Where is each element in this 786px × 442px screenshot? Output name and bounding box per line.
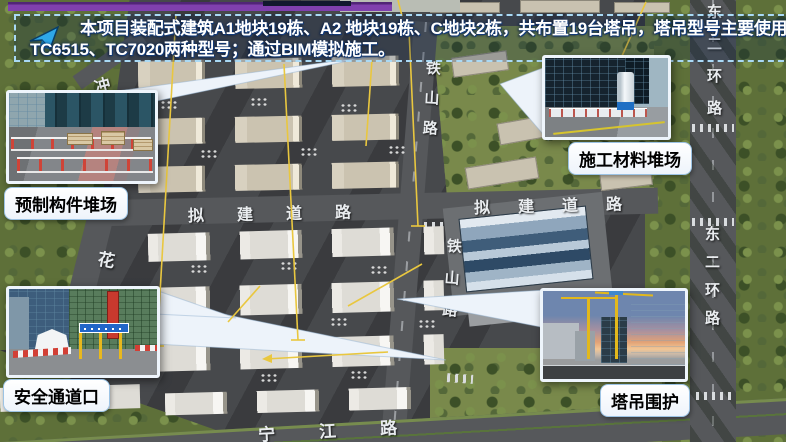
callout-image-material-yard — [542, 55, 671, 140]
callout-image-safety-passage — [6, 286, 160, 378]
banner-line-2: TC6515、TC7020两种型号；通过BIM模拟施工。 — [30, 39, 395, 61]
component-stack — [133, 139, 153, 151]
component-stack — [101, 131, 125, 145]
tower-crane-mast — [615, 293, 618, 359]
crosswalk — [696, 392, 736, 400]
fence — [17, 157, 153, 173]
callout-label-material-yard: 施工材料堆场 — [568, 142, 692, 175]
barrier — [135, 345, 160, 351]
safety-canopy — [75, 323, 133, 359]
tower-crane-mast — [587, 297, 590, 359]
tower-crane-jib — [561, 297, 617, 299]
top-accent-bar — [8, 2, 392, 11]
callout-image-precast-yard — [6, 90, 158, 184]
building — [614, 2, 670, 13]
callout-label-precast-yard: 预制构件堆场 — [4, 187, 128, 220]
road-label-east-ring-lower: 东二环路 — [701, 226, 722, 338]
accent-bar-detail — [263, 1, 351, 6]
crosswalk — [447, 373, 474, 384]
crosswalk — [692, 218, 734, 226]
crane-cab — [609, 291, 623, 295]
glass-building — [631, 303, 688, 365]
slide-canvas: 铁山路 铁山路 拟建道路 拟建道路 东二环路 东二环路 宁江路 花 冲 — [0, 0, 786, 442]
callout-label-safety-passage: 安全通道口 — [3, 379, 110, 412]
road-label-planned-left: 拟建道路 — [188, 198, 385, 226]
canopy-sign — [79, 323, 129, 333]
callout-label-crane-enclosure: 塔吊围护 — [600, 384, 690, 417]
building — [520, 0, 600, 13]
road-label-planned-right: 拟建道路 — [474, 190, 651, 219]
banner-line-1: 本项目装配式建筑A1地块19栋、A2 地块19栋、C地块2栋，共布置19台塔吊，… — [80, 18, 786, 40]
silo — [617, 72, 634, 104]
info-banner: 本项目装配式建筑A1地块19栋、A2 地块19栋、C地块2栋，共布置19台塔吊，… — [14, 14, 786, 62]
silo-base — [617, 102, 634, 110]
silver-hall-building — [458, 206, 593, 293]
component-stack — [67, 133, 93, 145]
callout-image-crane-enclosure — [540, 288, 688, 382]
